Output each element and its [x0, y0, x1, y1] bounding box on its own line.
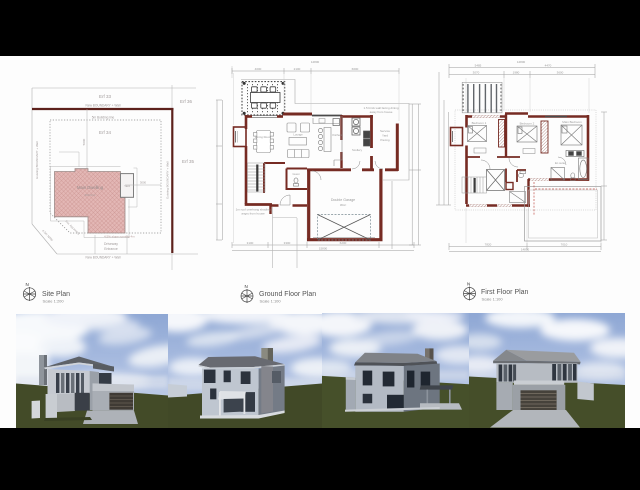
svg-text:5m Building line: 5m Building line [92, 116, 115, 120]
svg-text:Lounge: Lounge [293, 133, 303, 137]
svg-text:3600: 3600 [557, 71, 564, 75]
svg-text:First Floor Plan: First Floor Plan [481, 289, 529, 296]
svg-text:Guest: Guest [293, 172, 300, 176]
svg-text:3000: 3000 [140, 181, 147, 185]
svg-text:New BOUNDARY + Wall: New BOUNDARY + Wall [86, 256, 121, 260]
svg-text:3300: 3300 [284, 241, 291, 245]
svg-text:15800: 15800 [319, 247, 328, 251]
svg-text:Main Dwelling: Main Dwelling [77, 185, 104, 190]
svg-text:Scale 1:200: Scale 1:200 [43, 299, 65, 304]
svg-text:Double Garage: Double Garage [331, 198, 355, 202]
svg-text:Erf 36: Erf 36 [180, 99, 193, 104]
svg-text:Driveway: Driveway [104, 242, 118, 246]
svg-text:Erf 35: Erf 35 [182, 159, 195, 164]
svg-text:Dining Room: Dining Room [255, 135, 272, 139]
svg-text:Paving: Paving [380, 138, 390, 142]
svg-text:Erf 34: Erf 34 [99, 130, 112, 135]
svg-text:Main Bedroom: Main Bedroom [562, 120, 582, 124]
svg-text:290.0m²: 290.0m² [84, 193, 95, 197]
svg-text:3070: 3070 [473, 71, 480, 75]
svg-text:2100: 2100 [294, 67, 301, 71]
svg-text:4470: 4470 [545, 64, 552, 68]
svg-text:Bedroom 1: Bedroom 1 [472, 121, 487, 125]
svg-text:Scale 1:100: Scale 1:100 [260, 299, 282, 304]
svg-text:12800: 12800 [311, 60, 320, 64]
svg-text:Existing BOUNDARY + Wall: Existing BOUNDARY + Wall [35, 141, 39, 179]
svg-text:Yard: Yard [382, 134, 388, 138]
svg-text:5000: 5000 [82, 138, 86, 145]
svg-text:1980: 1980 [513, 71, 520, 75]
svg-text:N: N [467, 282, 470, 287]
svg-text:Scullery: Scullery [352, 148, 363, 152]
svg-text:3100: 3100 [247, 241, 254, 245]
svg-text:Ground Floor Plan: Ground Floor Plan [259, 291, 316, 298]
svg-text:Scale 1:100: Scale 1:100 [482, 297, 504, 302]
svg-text:N: N [26, 282, 29, 287]
svg-text:En suite: En suite [555, 161, 566, 165]
svg-text:14830: 14830 [521, 248, 530, 252]
svg-text:Service: Service [380, 129, 390, 133]
svg-text:4.5% slope running 4m: 4.5% slope running 4m [104, 235, 135, 239]
svg-text:Erf 33: Erf 33 [99, 94, 112, 99]
svg-text:Entrance: Entrance [104, 247, 118, 251]
svg-text:N: N [245, 284, 248, 289]
svg-text:7820: 7820 [485, 243, 492, 247]
svg-text:12800: 12800 [517, 60, 526, 64]
svg-text:Site Plan: Site Plan [42, 291, 70, 298]
svg-text:angry from house: angry from house [241, 212, 265, 216]
svg-text:Yard: Yard [124, 184, 130, 188]
svg-text:6600: 6600 [352, 67, 359, 71]
svg-text:New BOUNDARY + Wall: New BOUNDARY + Wall [86, 104, 121, 108]
svg-text:Existing BOUNDARY + Wall: Existing BOUNDARY + Wall [166, 161, 170, 199]
svg-text:36m²: 36m² [340, 203, 346, 207]
svg-text:4000: 4000 [255, 67, 262, 71]
svg-text:7010: 7010 [561, 243, 568, 247]
svg-text:Bedroom 2: Bedroom 2 [520, 122, 535, 126]
svg-text:5485: 5485 [475, 64, 482, 68]
svg-text:Kitchen: Kitchen [332, 133, 342, 137]
svg-text:away from house: away from house [370, 110, 393, 114]
svg-text:6200: 6200 [340, 241, 347, 245]
